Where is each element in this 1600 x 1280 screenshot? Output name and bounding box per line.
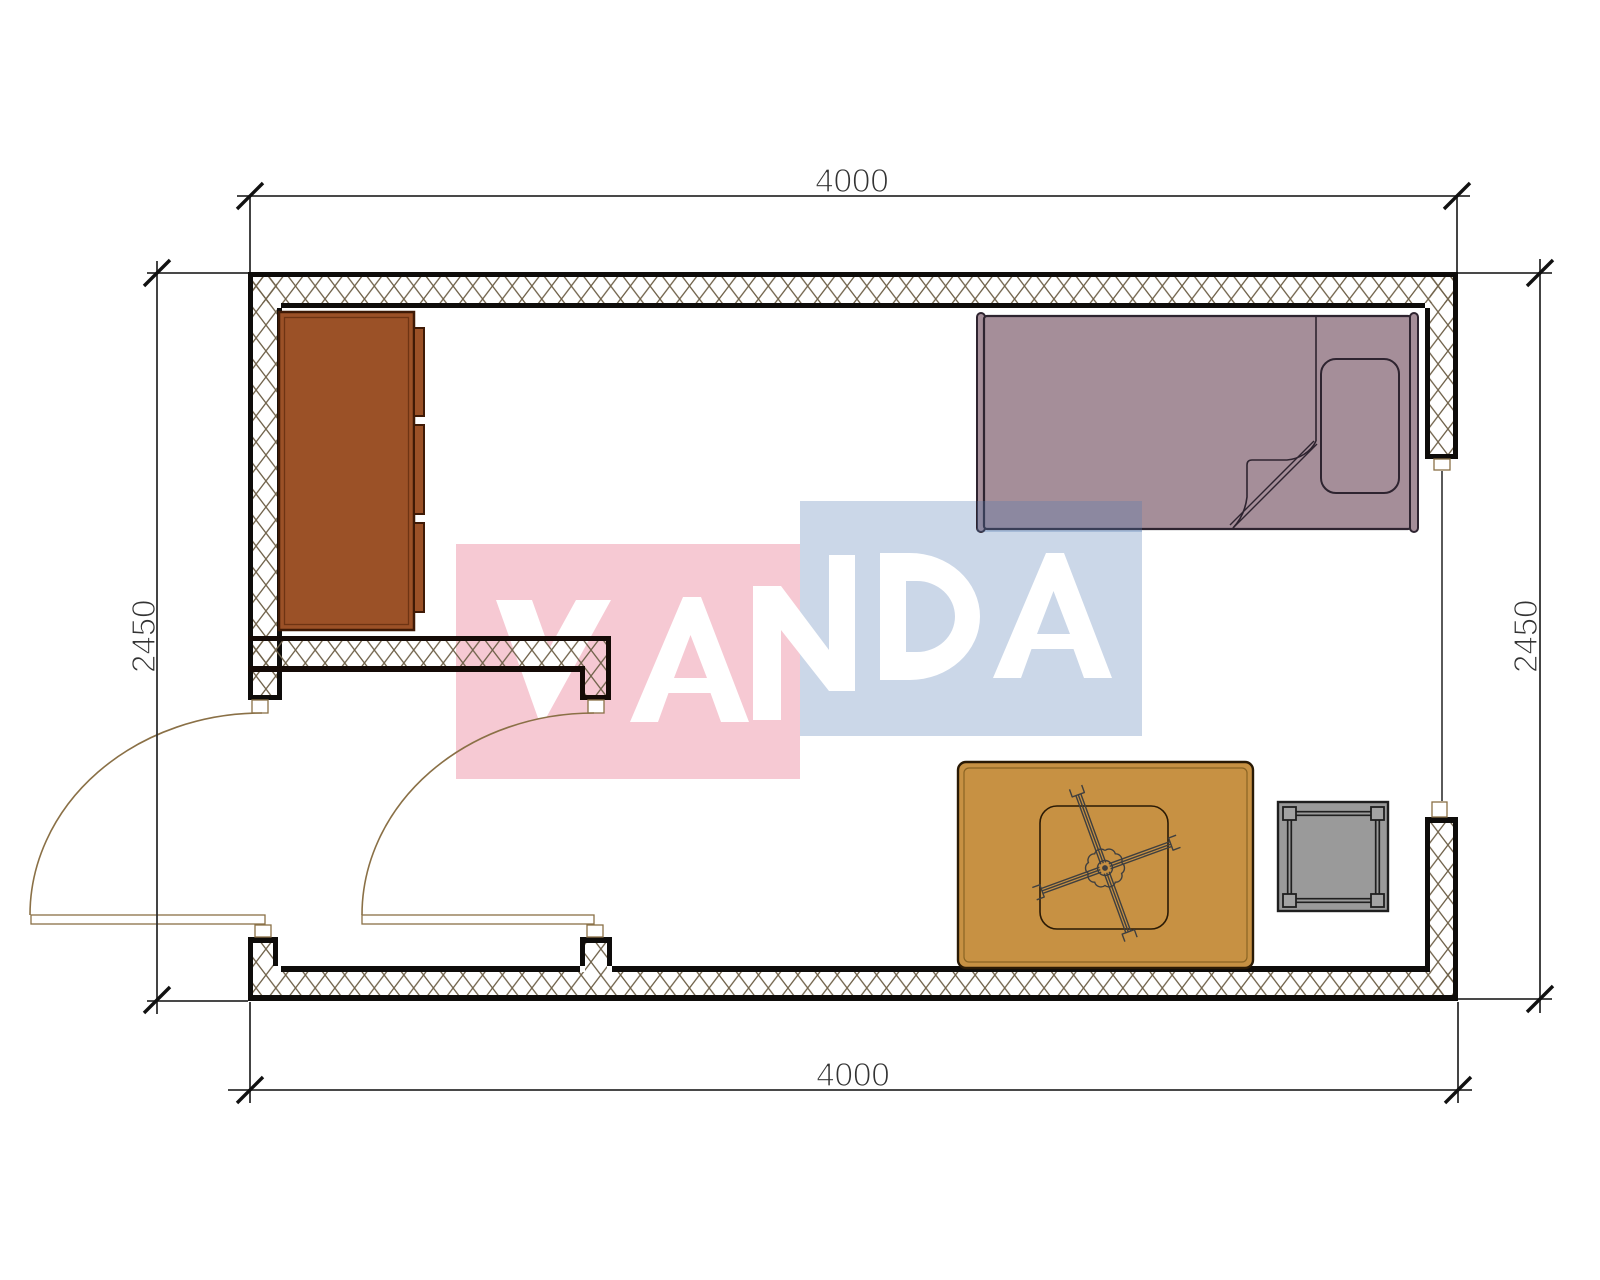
svg-text:2450: 2450 [1507,600,1544,673]
svg-text:4000: 4000 [816,1056,889,1093]
svg-text:4000: 4000 [815,162,888,199]
svg-text:2450: 2450 [125,600,162,673]
